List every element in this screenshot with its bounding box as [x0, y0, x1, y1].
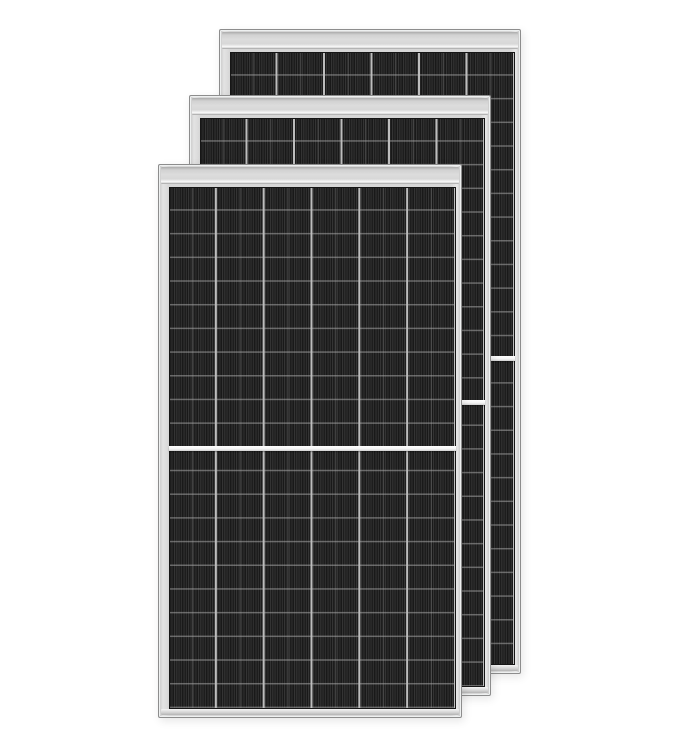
panel-top-rail	[192, 98, 488, 115]
panel-top-rail	[161, 167, 459, 184]
panel-top-rail	[222, 32, 518, 49]
half-cell-divider	[169, 446, 456, 451]
solar-cell-grid	[169, 187, 456, 709]
product-image-stage	[0, 0, 684, 748]
solar-panel-front	[158, 164, 462, 718]
panel-bottom-rail	[161, 709, 459, 715]
